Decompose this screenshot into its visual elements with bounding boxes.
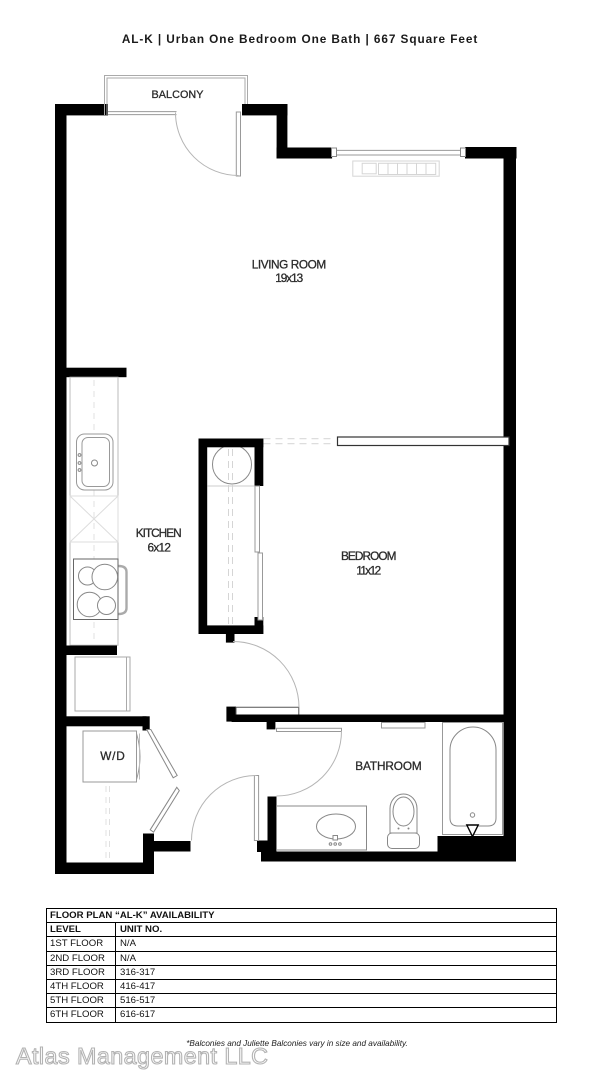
svg-text:BATHROOM: BATHROOM — [355, 759, 422, 773]
svg-text:KITCHEN: KITCHEN — [136, 526, 182, 540]
svg-text:LIVING ROOM: LIVING ROOM — [252, 257, 327, 271]
svg-text:BEDROOM: BEDROOM — [341, 549, 397, 563]
svg-text:19x13: 19x13 — [275, 271, 303, 285]
svg-text:BALCONY: BALCONY — [152, 89, 204, 101]
svg-text:6x12: 6x12 — [147, 540, 171, 554]
svg-text:11x12: 11x12 — [356, 564, 381, 578]
svg-text:W/D: W/D — [100, 749, 125, 763]
